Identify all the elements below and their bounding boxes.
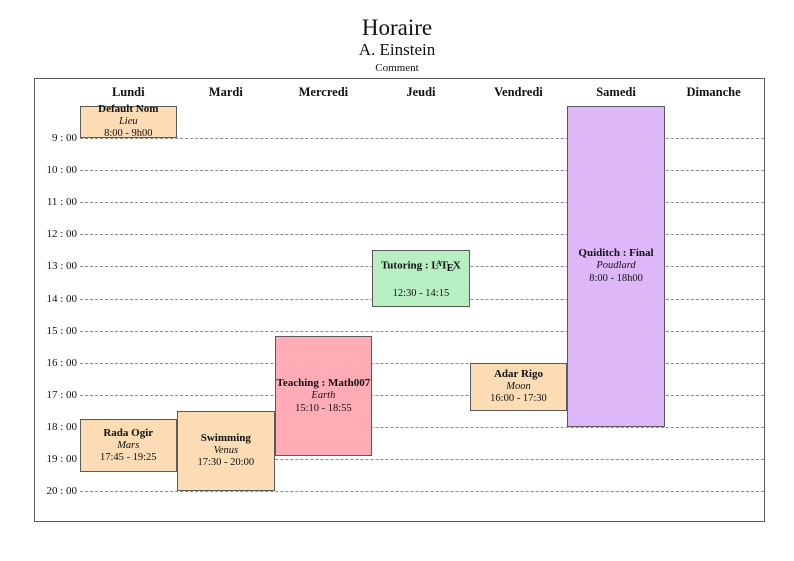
event-location: Mars <box>117 440 139 453</box>
event-title: Teaching : Math007 <box>277 377 371 390</box>
event-block: Default NomLieu8:00 - 9h00 <box>80 106 178 138</box>
event-time: 12:30 - 14:15 <box>393 288 450 301</box>
time-label: 11 : 00 <box>35 196 77 208</box>
event-location: Lieu <box>119 116 138 129</box>
event-title: Rada Ogir <box>103 427 153 440</box>
event-block: Adar RigoMoon16:00 - 17:30 <box>470 363 568 411</box>
time-label: 20 : 00 <box>35 485 77 497</box>
time-label: 12 : 00 <box>35 228 77 240</box>
event-time: 17:30 - 20:00 <box>198 457 255 470</box>
time-label: 13 : 00 <box>35 260 77 272</box>
day-header-lundi: Lundi <box>80 85 178 100</box>
event-title: Swimming <box>201 432 251 445</box>
author-subtitle: A. Einstein <box>0 40 794 59</box>
comment-line: Comment <box>0 61 794 75</box>
day-header-vendredi: Vendredi <box>470 85 568 100</box>
time-label: 10 : 00 <box>35 164 77 176</box>
event-location: Venus <box>214 445 239 458</box>
time-label: 16 : 00 <box>35 357 77 369</box>
day-header-mercredi: Mercredi <box>275 85 373 100</box>
timetable-page: Horaire A. Einstein Comment LundiMardiMe… <box>0 0 794 561</box>
event-location: Poudlard <box>596 260 635 273</box>
day-header-jeudi: Jeudi <box>372 85 470 100</box>
event-block: Tutoring : LATEX12:30 - 14:15 <box>372 250 470 306</box>
event-location: Earth <box>311 390 335 403</box>
event-block: SwimmingVenus17:30 - 20:00 <box>177 411 275 491</box>
event-time: 17:45 - 19:25 <box>100 452 157 465</box>
day-header-samedi: Samedi <box>567 85 665 100</box>
timetable-frame: LundiMardiMercrediJeudiVendrediSamediDim… <box>34 78 765 522</box>
page-title: Horaire <box>0 16 794 40</box>
hour-gridline <box>80 491 764 492</box>
event-location: Moon <box>506 381 531 394</box>
day-header-mardi: Mardi <box>177 85 275 100</box>
event-time: 16:00 - 17:30 <box>490 393 547 406</box>
event-title: Tutoring : LATEX <box>381 257 461 276</box>
time-label: 17 : 00 <box>35 389 77 401</box>
day-header-dimanche: Dimanche <box>665 85 763 100</box>
event-time: 15:10 - 18:55 <box>295 403 352 416</box>
event-block: Teaching : Math007Earth15:10 - 18:55 <box>275 336 373 456</box>
event-time: 8:00 - 18h00 <box>589 273 643 286</box>
event-title: Quiditch : Final <box>578 247 653 260</box>
title-block: Horaire A. Einstein Comment <box>0 16 794 75</box>
time-label: 9 : 00 <box>35 132 77 144</box>
event-block: Rada OgirMars17:45 - 19:25 <box>80 419 178 473</box>
time-label: 18 : 00 <box>35 421 77 433</box>
event-time: 8:00 - 9h00 <box>104 128 152 141</box>
time-label: 19 : 00 <box>35 453 77 465</box>
event-block: Quiditch : FinalPoudlard8:00 - 18h00 <box>567 106 665 427</box>
time-label: 14 : 00 <box>35 293 77 305</box>
event-title: Adar Rigo <box>494 368 543 381</box>
event-title: Default Nom <box>98 103 158 116</box>
time-label: 15 : 00 <box>35 325 77 337</box>
